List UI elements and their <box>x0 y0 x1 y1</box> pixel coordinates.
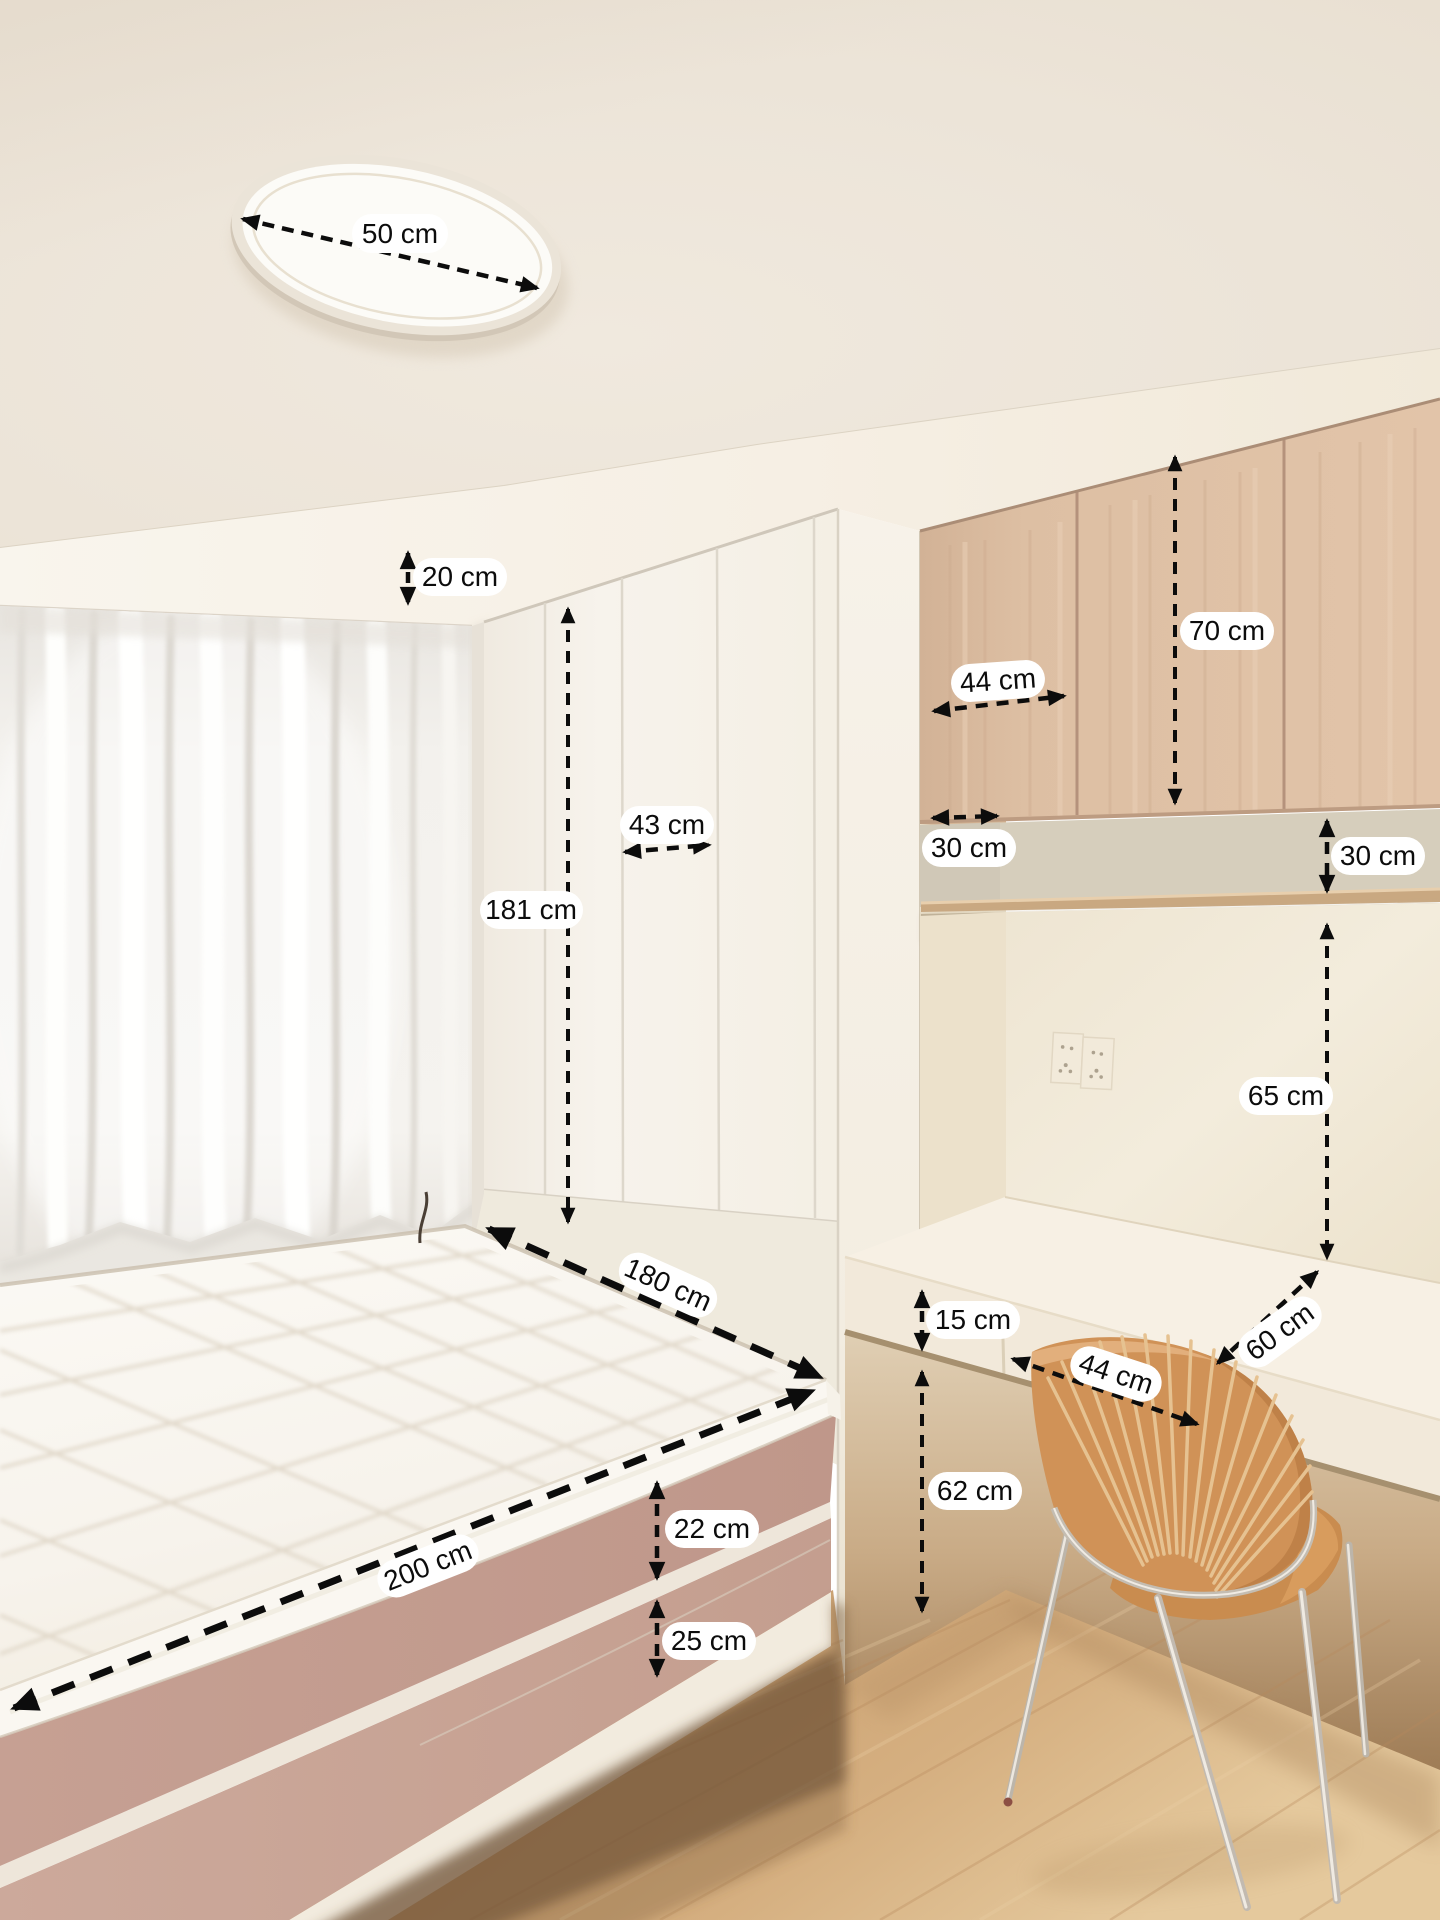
svg-text:15 cm: 15 cm <box>935 1304 1011 1335</box>
svg-text:25 cm: 25 cm <box>671 1625 747 1656</box>
svg-text:50 cm: 50 cm <box>362 218 438 249</box>
svg-text:181 cm: 181 cm <box>485 894 577 925</box>
svg-text:44 cm: 44 cm <box>959 662 1037 698</box>
svg-text:22 cm: 22 cm <box>674 1513 750 1544</box>
svg-text:30 cm: 30 cm <box>1340 840 1416 871</box>
svg-text:20 cm: 20 cm <box>422 561 498 592</box>
svg-text:62 cm: 62 cm <box>937 1475 1013 1506</box>
svg-text:30 cm: 30 cm <box>931 832 1007 863</box>
svg-text:43 cm: 43 cm <box>629 809 705 840</box>
svg-text:70 cm: 70 cm <box>1189 615 1265 646</box>
svg-text:65 cm: 65 cm <box>1248 1080 1324 1111</box>
